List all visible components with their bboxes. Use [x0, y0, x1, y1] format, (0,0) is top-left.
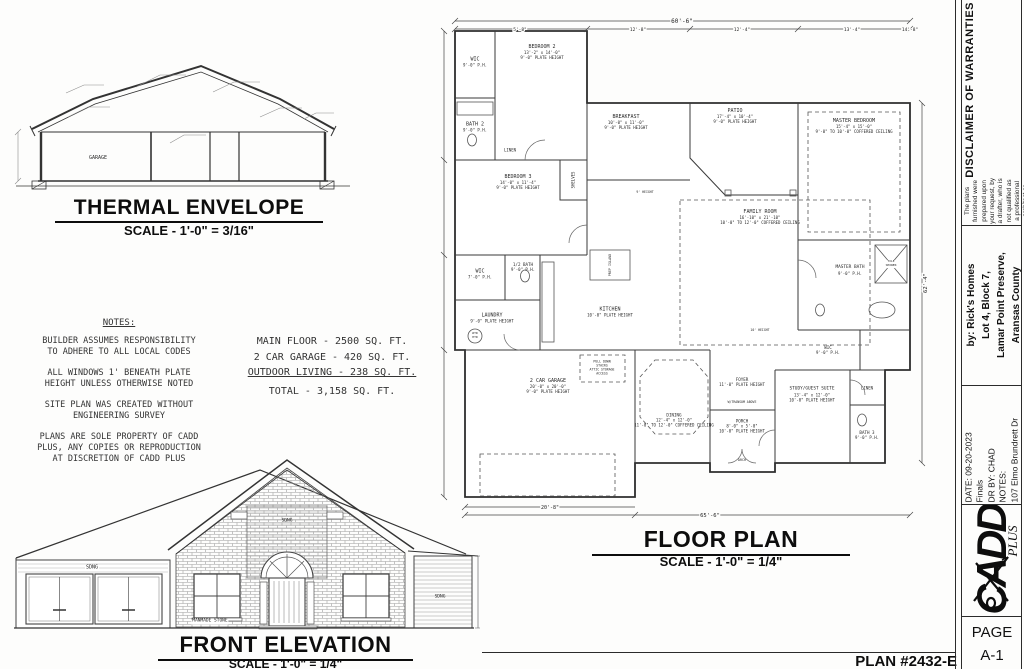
sheet-border-inner	[955, 0, 956, 669]
notes-heading: NOTES:	[103, 318, 136, 330]
thermal-scale: SCALE - 1'-0" = 3/16"	[55, 223, 323, 238]
room-label-wic-2: WIC7'-0" P.H.	[468, 268, 492, 279]
room-label-wic-1: WIC9'-0" P.H.	[463, 56, 487, 67]
room-label-bath-3: BATH 39'-0" P.H.	[855, 430, 879, 440]
page-label: PAGE	[962, 622, 1022, 645]
elevation-siding-label-garage: SDNG	[85, 565, 99, 571]
thermal-leader-notes	[15, 75, 334, 184]
plan-sheet: GARAGE THERMAL ENVELOPE SCALE - 1'-0" = …	[0, 0, 1024, 669]
room-label-wic-master: WIC9'-0" P.H.	[816, 345, 840, 355]
room-label-porch: PORCH8'-0" x 5'-0"10'-0" PLATE HEIGHT	[719, 418, 765, 433]
floor-plan-svg: 60'-6" 5'-8" 12'-8" 12'-4" 13'-4" 14'-8"…	[430, 10, 960, 525]
info-section: DATE: 09-20-2023 Finals DR BY: CHAD NOTE…	[964, 386, 1020, 503]
thermal-title: THERMAL ENVELOPE	[55, 196, 323, 223]
room-label-master-bath: MASTER BATH9'-0" P.H.	[835, 265, 864, 276]
room-label-linen-1: LINEN	[504, 148, 516, 153]
info-address: 107 Elmo Brundrett Dr	[1009, 386, 1020, 503]
svg-text:65'-6": 65'-6"	[700, 513, 720, 519]
elevation-siding-label-gable: SDNG	[281, 520, 294, 525]
room-label-foyer: FOYER11'-0" PLATE HEIGHT	[719, 377, 765, 387]
svg-text:60'-6": 60'-6"	[671, 18, 693, 25]
floor-plan-scale: SCALE - 1'-0" = 1/4"	[592, 554, 850, 569]
page-section: PAGE A-1	[962, 622, 1022, 667]
room-label-shelves: SHELVES	[571, 172, 576, 189]
svg-text:12'-8": 12'-8"	[630, 27, 646, 33]
room-label-garage: 2 CAR GARAGE20'-0" x 20'-0"9'-0" PLATE H…	[526, 378, 569, 394]
client-by-line: by: Rick's Homes	[964, 226, 979, 384]
room-label-laundry: LAUNDRY9'-0" PLATE HEIGHT	[470, 312, 513, 323]
front-elevation-drawing: SDNG SDNG SDNG MANMADE STONE	[10, 450, 480, 635]
disclaimer-section: The plans furnished were prepared upon y…	[964, 2, 1020, 224]
annotation-transom: W/TRANSOM ABOVE	[728, 400, 757, 404]
area-total: TOTAL - 3,158 SQ. FT.	[232, 384, 432, 400]
note-item-1: BUILDER ASSUMES RESPONSIBILITY TO ADHERE…	[10, 336, 228, 358]
area-garage: 2 CAR GARAGE - 420 SQ. FT.	[232, 350, 432, 366]
floor-plan-drawing: 60'-6" 5'-8" 12'-8" 12'-4" 13'-4" 14'-8"…	[430, 10, 960, 525]
front-elevation-scale: SCALE - 1'-0" = 1/4"	[158, 657, 413, 669]
title-block-left-border	[961, 0, 962, 669]
room-label-bedroom-2: BEDROOM 213'-2" x 14'-0"9'-0" PLATE HEIG…	[520, 44, 563, 60]
client-county-line: Aransas County	[1009, 226, 1024, 384]
elevation-right-wing	[414, 556, 480, 628]
disclaimer-title: DISCLAIMER OF WARRANTIES	[964, 2, 1020, 178]
annotation-tile-shower: TILE SHOWER	[886, 260, 897, 268]
svg-text:12'-4": 12'-4"	[734, 27, 750, 33]
room-label-master-bedroom: MASTER BEDROOM15'-4" x 15'-0"9'-0" TO 10…	[815, 118, 892, 134]
info-phase: Finals	[975, 386, 986, 503]
room-label-patio: PATIO17'-4" x 10'-4"9'-0" PLATE HEIGHT	[713, 108, 756, 124]
annotation-water-heater: WTR HTR	[472, 332, 477, 340]
room-label-bath-2: BATH 29'-0" P.H.	[463, 121, 487, 132]
room-label-study-guest-suite: STUDY/GUEST SUITE13'-4" x 12'-0"10'-0" P…	[789, 386, 835, 402]
plan-number: PLAN #2432-E	[815, 653, 957, 669]
page-number: A-1	[962, 645, 1022, 668]
svg-text:14'-8": 14'-8"	[902, 27, 918, 33]
front-elevation-svg	[10, 450, 480, 635]
room-label-linen-2: LINEN	[861, 386, 873, 391]
area-summary: MAIN FLOOR - 2500 SQ. FT. 2 CAR GARAGE -…	[232, 334, 432, 399]
floor-plan-title: FLOOR PLAN	[592, 526, 850, 556]
cadd-logo-sub-text: PLUS	[1005, 525, 1020, 558]
annotation-10ft-height: 10' HEIGHT	[750, 328, 769, 332]
svg-text:13'-4": 13'-4"	[844, 27, 860, 33]
thermal-garage-label: GARAGE	[89, 155, 107, 161]
annotation-arch: ARCH	[738, 458, 746, 462]
svg-text:62'-4": 62'-4"	[923, 273, 929, 293]
room-label-prep-island: PREP ISLAND	[608, 254, 612, 276]
client-section: by: Rick's Homes Lot 4, Block 7, Lamar P…	[964, 226, 1020, 384]
title-block-divider-4	[961, 616, 1022, 617]
annotation-9ft-height: 9' HEIGHT	[636, 190, 653, 194]
room-label-breakfast: BREAKFAST10'-0" x 11'-0"9'-0" PLATE HEIG…	[604, 114, 647, 130]
elevation-siding-label-right: SDNG	[434, 596, 447, 601]
area-main-floor: MAIN FLOOR - 2500 SQ. FT.	[232, 334, 432, 350]
thermal-envelope-drawing: GARAGE	[8, 45, 358, 197]
cadd-logo-svg: CADD PLUS	[964, 505, 1020, 615]
cadd-logo: CADD PLUS	[964, 505, 1020, 615]
elevation-stone-label: MANMADE STONE	[191, 620, 228, 625]
disclaimer-body: The plans furnished were prepared upon y…	[964, 178, 1020, 224]
note-item-3: SITE PLAN WAS CREATED WITHOUT ENGINEERIN…	[10, 400, 228, 422]
svg-text:20'-8": 20'-8"	[541, 505, 559, 511]
note-item-2: ALL WINDOWS 1' BENEATH PLATE HEIGHT UNLE…	[10, 368, 228, 390]
thermal-envelope-svg	[8, 45, 358, 197]
svg-text:5'-8": 5'-8"	[513, 27, 527, 33]
info-date: DATE: 09-20-2023	[964, 386, 975, 503]
thermal-roof	[30, 66, 336, 136]
room-label-bedroom-3: BEDROOM 314'-0" x 11'-4"9'-0" PLATE HEIG…	[496, 174, 539, 190]
info-notes-label: NOTES:	[998, 386, 1009, 503]
client-lot-line: Lot 4, Block 7,	[979, 226, 994, 384]
room-label-dining: DINING12'-4" x 12'-0"11'-0" TO 12'-0" CO…	[634, 412, 713, 427]
client-subdivision-line: Lamar Point Preserve,	[994, 226, 1009, 384]
area-outdoor-living: OUTDOOR LIVING - 238 SQ. FT.	[232, 365, 432, 381]
info-drawn-by: DR BY: CHAD	[986, 386, 997, 503]
room-label-half-bath: 1/2 BATH9'-0" P.H.	[511, 262, 535, 272]
annotation-pull-down-stairs: PULL DOWN STAIRS ATTIC STORAGE ACCESS	[590, 360, 615, 377]
thermal-structure	[16, 132, 350, 189]
room-label-kitchen: KITCHEN10'-0" PLATE HEIGHT	[587, 306, 633, 317]
room-label-family-room: FAMILY ROOM16'-10" x 21'-10"10'-0" TO 12…	[720, 209, 799, 225]
